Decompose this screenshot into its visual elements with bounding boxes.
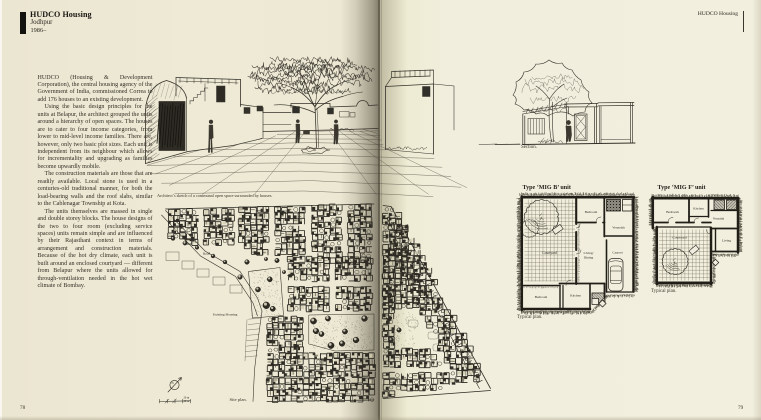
svg-text:Courtyard: Courtyard — [672, 235, 686, 239]
svg-text:Verandah: Verandah — [612, 226, 625, 230]
svg-text:Dining: Dining — [584, 255, 594, 259]
svg-text:Living/: Living/ — [584, 251, 594, 255]
svg-text:Courtyard: Courtyard — [542, 251, 557, 255]
svg-text:Kitchen: Kitchen — [693, 206, 704, 210]
svg-text:Bedroom: Bedroom — [535, 295, 548, 299]
svg-text:Existing Housing: Existing Housing — [213, 313, 238, 317]
svg-text:Kitchen: Kitchen — [570, 293, 581, 297]
svg-text:40 m: 40 m — [184, 400, 190, 403]
svg-text:Bedroom: Bedroom — [585, 210, 598, 214]
svg-text:Verandah: Verandah — [713, 217, 725, 221]
svg-text:Bedroom: Bedroom — [666, 210, 679, 214]
svg-text:Road: Road — [203, 251, 211, 256]
svg-text:Carport: Carport — [612, 250, 622, 254]
svg-text:Living: Living — [722, 238, 731, 242]
svg-text:N: N — [172, 381, 175, 385]
